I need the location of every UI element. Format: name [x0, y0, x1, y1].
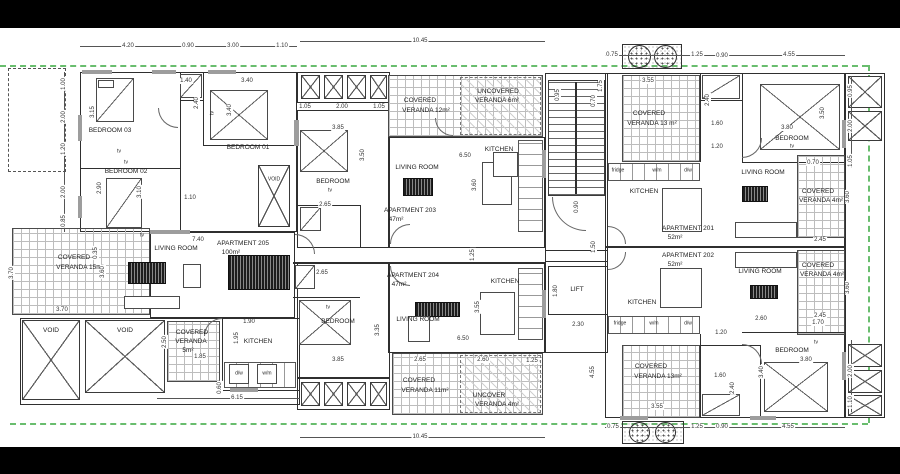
apartment-202-area: 52m² [668, 262, 683, 269]
dim-label: 2.60 [754, 316, 768, 322]
veranda-13t-label: COVERED [633, 111, 665, 118]
dim-label: 1.20 [714, 330, 728, 336]
dishwasher-label: d/w [684, 169, 692, 174]
dim-label: 2.45 [813, 237, 827, 243]
wall-hatch [620, 416, 648, 420]
tv-unit [415, 302, 460, 317]
apartment-201-name: APARTMENT 201 [662, 226, 714, 233]
dining-table [660, 268, 702, 308]
sofa [128, 262, 166, 284]
apartment-205-name: APARTMENT 205 [217, 241, 269, 248]
tv-label: tv [117, 150, 121, 155]
veranda-11-label: VERANDA 11m² [401, 388, 448, 395]
room-label-kitchen-203: KITCHEN [485, 147, 514, 154]
dim-label: 0.95 [555, 88, 561, 102]
skylight-x-box [347, 75, 366, 99]
dim-label: 2.00 [61, 110, 67, 124]
wall-hatch [750, 416, 776, 420]
dim-label: 3.60 [472, 178, 478, 192]
tv-label: tv [211, 111, 216, 115]
dim-label: 1.25 [525, 358, 539, 364]
wall-hatch [294, 120, 299, 146]
dim-label: 2.60 [476, 357, 490, 363]
dim-label: 6.50 [458, 153, 472, 159]
setback-dashed-rect [8, 68, 66, 172]
dim-label: 3.50 [360, 148, 366, 162]
tree-icon [654, 45, 677, 68]
wall-hatch [842, 352, 846, 380]
room-label-bedroom01: BEDROOM 01 [227, 145, 270, 152]
apartment-divider-wall [605, 246, 845, 248]
skylight-x-box [347, 382, 366, 406]
bed [210, 90, 268, 140]
dim-label: 3.80 [780, 125, 794, 131]
room-label-kitchen-202: KITCHEN [628, 300, 657, 307]
veranda-5-label: VERANDA [175, 339, 206, 346]
skylight-x-box [324, 382, 343, 406]
wall-hatch [78, 115, 82, 141]
dim-label: 0.85 [61, 214, 67, 228]
apartment-201-area: 52m² [668, 235, 683, 242]
room-label-living-201: LIVING ROOM [741, 170, 784, 177]
veranda-15-label: VERANDA 15m² [56, 265, 104, 272]
dim-label: 1.85 [193, 354, 207, 360]
room-label-kitchen-205: KITCHEN [244, 339, 273, 346]
apartment-205-area: 100m² [222, 250, 240, 257]
pillow [98, 80, 114, 88]
dim-label: 1.70 [811, 320, 825, 326]
dim-label: 3.60 [845, 281, 851, 295]
room-label-bedroom-201: BEDROOM [775, 136, 809, 143]
dim-label: 1.95 [234, 331, 240, 345]
dim-label: 3.70 [55, 307, 69, 313]
dim-label: 3.35 [375, 323, 381, 337]
dim-label: 0.90 [181, 43, 195, 49]
dim-label: 1.25 [690, 52, 704, 58]
tv-label: tv [790, 145, 794, 150]
tree-icon [629, 422, 650, 443]
dim-label: 3.40 [227, 103, 233, 117]
veranda-13b-label: VERANDA 13m² [634, 374, 682, 381]
dim-label: 2.40 [730, 381, 736, 395]
bed [300, 130, 348, 172]
room-label-bedroom03: BEDROOM 03 [89, 128, 132, 135]
room-label-bedroom-202: BEDROOM [775, 348, 809, 355]
veranda-5-label: 5m² [182, 348, 193, 355]
uncovered-4-label: VERANDA 4m² [475, 402, 519, 409]
dim-label: 2.90 [97, 181, 103, 195]
tree-icon [655, 422, 676, 443]
dim-label: 1.25 [690, 424, 704, 430]
uncovered-6-label: UNCOVERED [477, 89, 519, 96]
veranda-13-top-hatch [622, 75, 700, 162]
dim-label: 3.55 [475, 300, 481, 314]
veranda-15-label: COVERED [58, 255, 90, 262]
wall-hatch [542, 290, 546, 318]
shower [295, 265, 315, 289]
dim-label: 0.95 [848, 84, 854, 98]
dim-label: 2.00 [848, 364, 854, 378]
sofa [735, 222, 797, 238]
dim-label: 1.00 [61, 77, 67, 91]
veranda-4t-label: VERANDA 4m² [799, 198, 843, 205]
wall-segment [360, 205, 361, 248]
site-boundary-top [0, 65, 868, 67]
letterbox-bottom [0, 447, 900, 474]
dim-label: 3.00 [226, 43, 240, 49]
shower [300, 207, 321, 231]
dim-label: 1.10 [848, 395, 854, 409]
dim-label: 2.00 [61, 185, 67, 199]
dim-label: 2.50 [162, 335, 168, 349]
veranda-12-label: VERANDA 12m² [402, 108, 450, 115]
armchair [183, 264, 201, 288]
dim-label: 6.50 [456, 336, 470, 342]
dim-label: 3.50 [820, 106, 826, 120]
room-label-kitchen-201: KITCHEN [630, 189, 659, 196]
veranda-4b-label: VERANDA 4m² [800, 272, 844, 279]
dim-label: 4.55 [781, 424, 795, 430]
dim-label: 3.60 [100, 265, 106, 279]
uncovered-4-label: UNCOVER [473, 393, 506, 400]
dim-label: 1.90 [242, 319, 256, 325]
veranda-13b-label: COVERED [635, 364, 667, 371]
side-table [493, 152, 518, 177]
apartment-203-area: 47m² [389, 217, 404, 224]
washing-machine-label: w/m [649, 322, 658, 327]
uncovered-veranda-6 [460, 77, 541, 135]
dim-label: 0.90 [574, 200, 580, 214]
tv-label: tv [140, 234, 144, 239]
dim-label: 4.55 [590, 365, 596, 379]
dim-label: 0.60 [217, 381, 223, 395]
apartment-202-name: APARTMENT 202 [662, 253, 714, 260]
veranda-13t-label: VERANDA 13 m² [627, 121, 677, 128]
wall-segment [700, 334, 701, 418]
dim-label: 2.40 [705, 93, 711, 107]
skylight-x-box [324, 75, 343, 99]
kitchen-counter [518, 268, 543, 340]
dim-label: 6.15 [230, 395, 244, 401]
washing-machine-label: w/m [262, 372, 271, 377]
dim-label: 1.25 [470, 248, 476, 262]
dim-label: 3.15 [90, 105, 96, 119]
room-label-void-b: VOID [117, 328, 133, 335]
dim-label: 1.10 [183, 195, 197, 201]
veranda-5-label: COVERED [176, 330, 208, 337]
skylight-x-box [301, 75, 320, 99]
dim-label: 0.90 [715, 424, 729, 430]
wall-hatch [542, 150, 546, 178]
tv-unit [742, 186, 768, 202]
wall-hatch [150, 230, 190, 234]
dim-label: 0.70 [591, 94, 597, 108]
dim-label: 3.60 [845, 190, 851, 204]
washing-machine-label: w/m [652, 169, 661, 174]
dim-label: 1.40 [179, 78, 193, 84]
dim-label: 0.70 [806, 160, 820, 166]
dim-label: 2.30 [571, 322, 585, 328]
apartment-204-name: APARTMENT 204 [387, 273, 439, 280]
dim-label: 0.35 [93, 246, 99, 260]
dim-label: 2.00 [848, 119, 854, 133]
dim-label: 3.80 [799, 357, 813, 363]
dim-label: 4.20 [121, 43, 135, 49]
veranda-12-label: COVERED [404, 98, 436, 105]
apartment-203-name: APARTMENT 203 [384, 208, 436, 215]
tv-unit [403, 178, 433, 196]
dim-label: 10.45 [411, 434, 428, 440]
wall-segment [222, 318, 223, 390]
wall-hatch [78, 196, 82, 218]
room-label-bedroom-203: BEDROOM [316, 179, 350, 186]
dim-label: 3.55 [650, 404, 664, 410]
sofa [735, 252, 797, 268]
veranda-4t-label: COVERED [802, 189, 834, 196]
room-label-living-205: LIVING ROOM [154, 246, 197, 253]
dining-table [228, 255, 290, 290]
skylight-x-box [301, 382, 320, 406]
wall-segment [203, 72, 204, 145]
dim-label: 1.05 [848, 154, 854, 168]
dim-line [157, 398, 300, 399]
veranda-11-label: COVERED [403, 378, 435, 385]
bed [764, 362, 828, 412]
tv-label: tv [326, 306, 330, 311]
room-label-living-204: LIVING ROOM [396, 317, 439, 324]
dim-label: 1.05 [298, 104, 312, 110]
uncovered-6-label: VERANDA 6m² [475, 98, 519, 105]
dim-label: 1.60 [713, 373, 727, 379]
dim-label: 1.20 [61, 142, 67, 156]
dim-label: 3.85 [331, 125, 345, 131]
floor-plan-screenshot: BEDROOM 03 BEDROOM 02 BEDROOM 01 BEDROOM… [0, 0, 900, 474]
room-label-void-shaft: VOID [268, 178, 280, 183]
dim-label: 0.75 [605, 52, 619, 58]
dim-label: 3.40 [240, 78, 254, 84]
wall-hatch [230, 388, 258, 392]
fridge-label: fridge [612, 169, 625, 174]
dim-label: 4.55 [782, 52, 796, 58]
room-label-bedroom02: BEDROOM 02 [105, 169, 148, 176]
dim-label: 2.00 [335, 104, 349, 110]
dim-label: 2.40 [194, 96, 200, 110]
veranda-4b-label: COVERED [802, 263, 834, 270]
dim-label: 1.05 [372, 104, 386, 110]
dim-label: 1.10 [275, 43, 289, 49]
dishwasher-label: d/w [235, 372, 243, 377]
dim-label: 0.90 [715, 53, 729, 59]
dim-label: 2.65 [318, 202, 332, 208]
room-label-void-a: VOID [43, 328, 59, 335]
dim-label: 1.60 [710, 121, 724, 127]
apartment-204-area: 47m² [392, 282, 407, 289]
room-label-bedroom-204: BEDROOM [321, 319, 355, 326]
dim-label: 1.20 [710, 144, 724, 150]
dim-label: 2.65 [413, 357, 427, 363]
dim-label: 7.40 [191, 237, 205, 243]
tv-unit [750, 285, 778, 299]
dining-table [480, 292, 515, 335]
dishwasher-label: d/w [684, 322, 692, 327]
wall-hatch [208, 70, 236, 74]
wall-hatch [152, 70, 176, 74]
dim-label: 3.10 [137, 185, 143, 199]
shower [702, 394, 740, 416]
letterbox-top [0, 0, 900, 28]
fridge-label: fridge [614, 322, 627, 327]
wall-hatch [842, 120, 846, 148]
void-shaft-x-box [258, 165, 290, 227]
site-boundary-bottom [10, 423, 868, 425]
wall-segment [742, 332, 845, 333]
room-label-living-203: LIVING ROOM [395, 165, 438, 172]
stair-stringer [575, 82, 577, 194]
wall-segment [700, 73, 701, 162]
dim-label: 3.40 [759, 365, 765, 379]
room-label-kitchen-204: KITCHEN [491, 279, 520, 286]
dim-label: 2.65 [315, 270, 329, 276]
wall-segment [293, 297, 360, 298]
dim-label: 3.85 [331, 357, 345, 363]
dim-label: 2.45 [813, 313, 827, 319]
tree-icon [628, 45, 651, 68]
dim-label: 1.80 [553, 284, 559, 298]
tv-label: tv [328, 189, 332, 194]
skylight-x-box [370, 75, 387, 99]
tv-label: tv [124, 161, 128, 166]
tv-label: tv [814, 341, 818, 346]
wall-hatch [82, 70, 112, 74]
dim-label: 1.50 [591, 240, 597, 254]
dim-label: 3.70 [9, 266, 15, 280]
dim-label: 10.45 [411, 38, 428, 44]
room-label-lift: LIFT [570, 287, 583, 294]
dim-label: 1.75 [598, 79, 604, 93]
dim-label: 0.75 [606, 424, 620, 430]
dim-label: 3.55 [641, 78, 655, 84]
room-label-living-202: LIVING ROOM [738, 269, 781, 276]
skylight-x-box [370, 382, 387, 406]
kitchen-counter [518, 140, 543, 232]
sofa [124, 296, 180, 309]
